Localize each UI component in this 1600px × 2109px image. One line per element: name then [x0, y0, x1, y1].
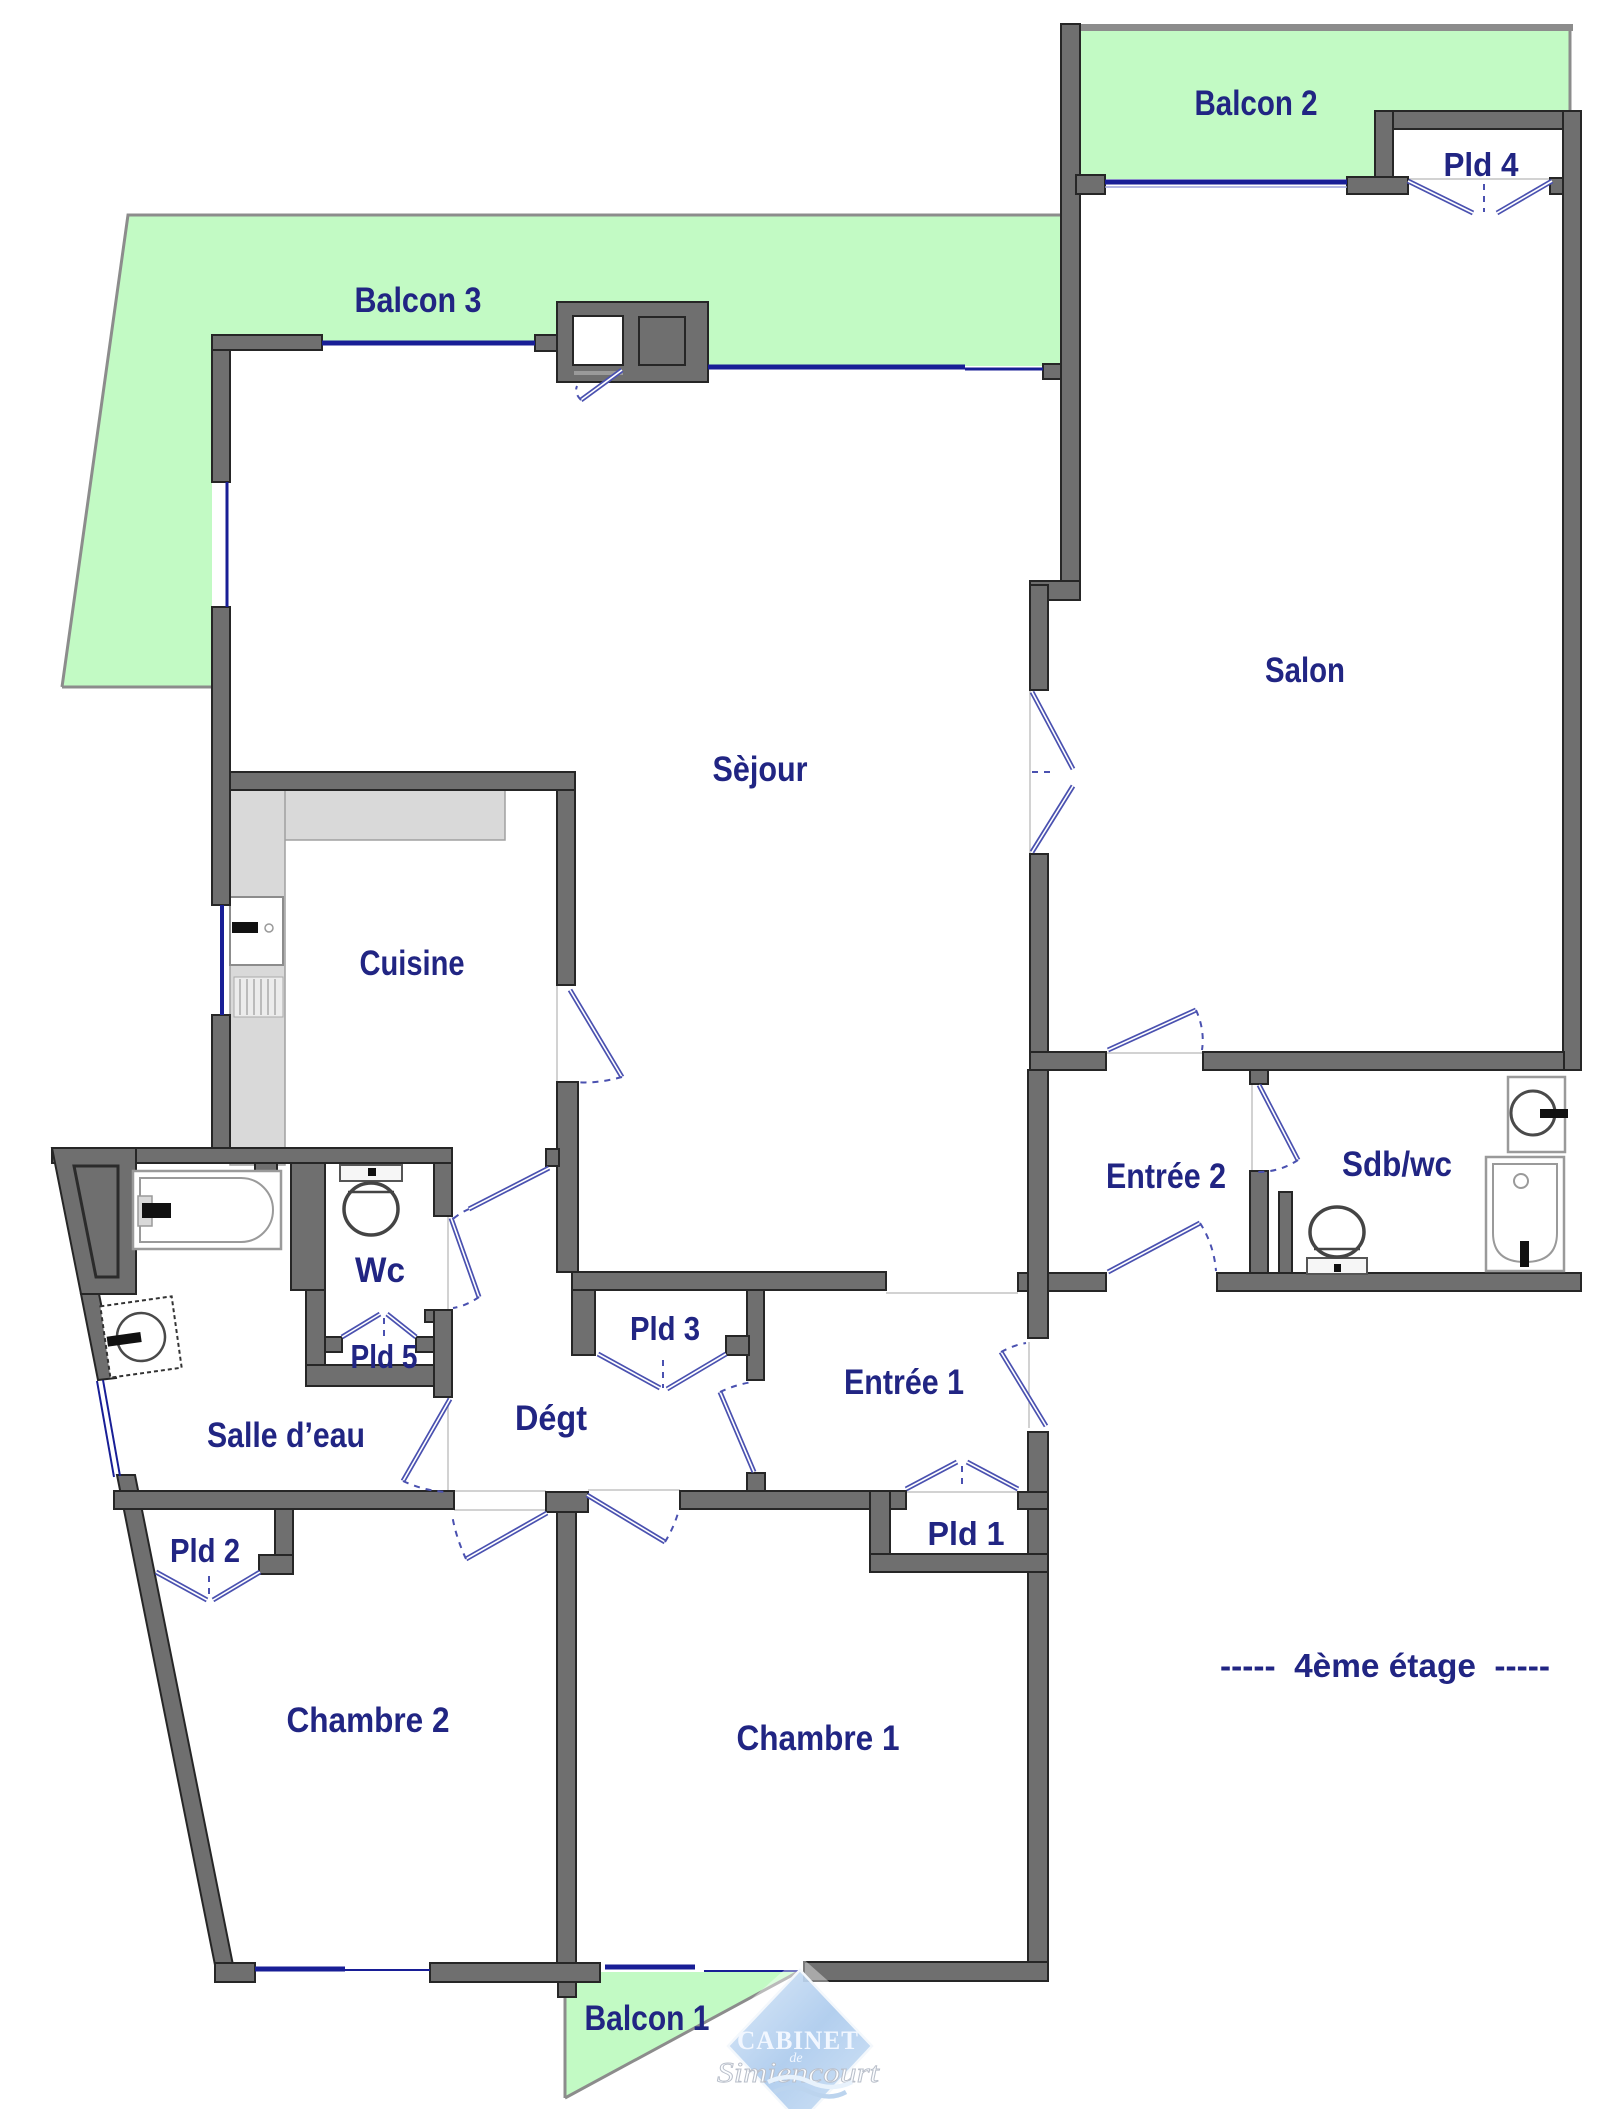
svg-text:Pld 2: Pld 2	[170, 1532, 240, 1569]
svg-text:Sdb/wc: Sdb/wc	[1342, 1145, 1452, 1184]
svg-text:Pld 5: Pld 5	[351, 1338, 418, 1375]
svg-text:Pld 1: Pld 1	[928, 1515, 1005, 1552]
svg-text:Entrée 1: Entrée 1	[844, 1363, 964, 1402]
svg-text:Pld 3: Pld 3	[630, 1310, 700, 1347]
svg-text:Pld 4: Pld 4	[1444, 146, 1520, 183]
svg-text:Wc: Wc	[355, 1251, 405, 1290]
svg-text:Balcon 1: Balcon 1	[585, 1999, 710, 2038]
svg-text:Balcon 2: Balcon 2	[1195, 84, 1318, 123]
svg-text:Balcon 3: Balcon 3	[355, 281, 482, 320]
svg-text:Simiencourt: Simiencourt	[717, 2057, 880, 2089]
svg-text:Salle d’eau: Salle d’eau	[207, 1416, 365, 1455]
svg-text:Entrée 2: Entrée 2	[1106, 1157, 1226, 1196]
svg-text:Chambre 2: Chambre 2	[287, 1701, 450, 1740]
svg-text:Sèjour: Sèjour	[713, 750, 808, 789]
svg-text:Chambre 1: Chambre 1	[737, 1719, 900, 1758]
svg-text:----- 4ème étage -----: ----- 4ème étage -----	[1220, 1647, 1550, 1684]
svg-text:Dégt: Dégt	[515, 1399, 587, 1438]
svg-text:Cuisine: Cuisine	[360, 944, 465, 983]
svg-text:Salon: Salon	[1265, 651, 1345, 690]
